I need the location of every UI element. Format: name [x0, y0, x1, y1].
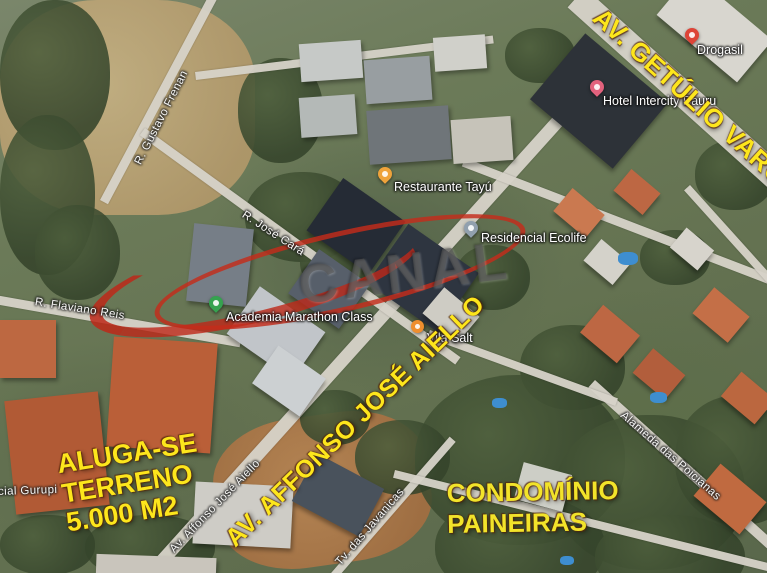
building-roof — [299, 94, 358, 138]
poi-label[interactable]: Restaurante Tayú — [394, 180, 492, 194]
annotation-line: CONDOMÍNIO — [446, 475, 618, 509]
poi-label[interactable]: Academia Marathon Class — [226, 310, 373, 324]
annotation-condominio-paineiras: CONDOMÍNIO PAINEIRAS — [446, 475, 619, 540]
tree-patch — [35, 205, 120, 300]
poi-label[interactable]: Residencial Ecolife — [481, 231, 587, 245]
street-label-gurupi: cial Gurupi — [0, 484, 58, 498]
building-roof — [299, 40, 363, 82]
poi-label[interactable]: Drogasil — [697, 43, 743, 57]
building-roof — [692, 287, 749, 343]
swimming-pool — [650, 392, 667, 403]
map-pin-icon[interactable] — [375, 164, 395, 184]
swimming-pool — [492, 398, 507, 408]
map-dot-marker-icon[interactable] — [411, 320, 424, 333]
satellite-map[interactable]: CANAL R. Gustavo Frenan R. José Cará R. … — [0, 0, 767, 573]
building-roof — [364, 56, 433, 104]
swimming-pool — [618, 252, 638, 265]
building-roof — [451, 116, 514, 164]
annotation-line: PAINEIRAS — [447, 506, 619, 540]
swimming-pool — [560, 556, 574, 565]
building-roof — [0, 320, 56, 378]
building-roof — [366, 105, 452, 165]
building-roof — [433, 34, 487, 72]
building-roof — [613, 169, 660, 215]
building-roof — [96, 554, 217, 573]
